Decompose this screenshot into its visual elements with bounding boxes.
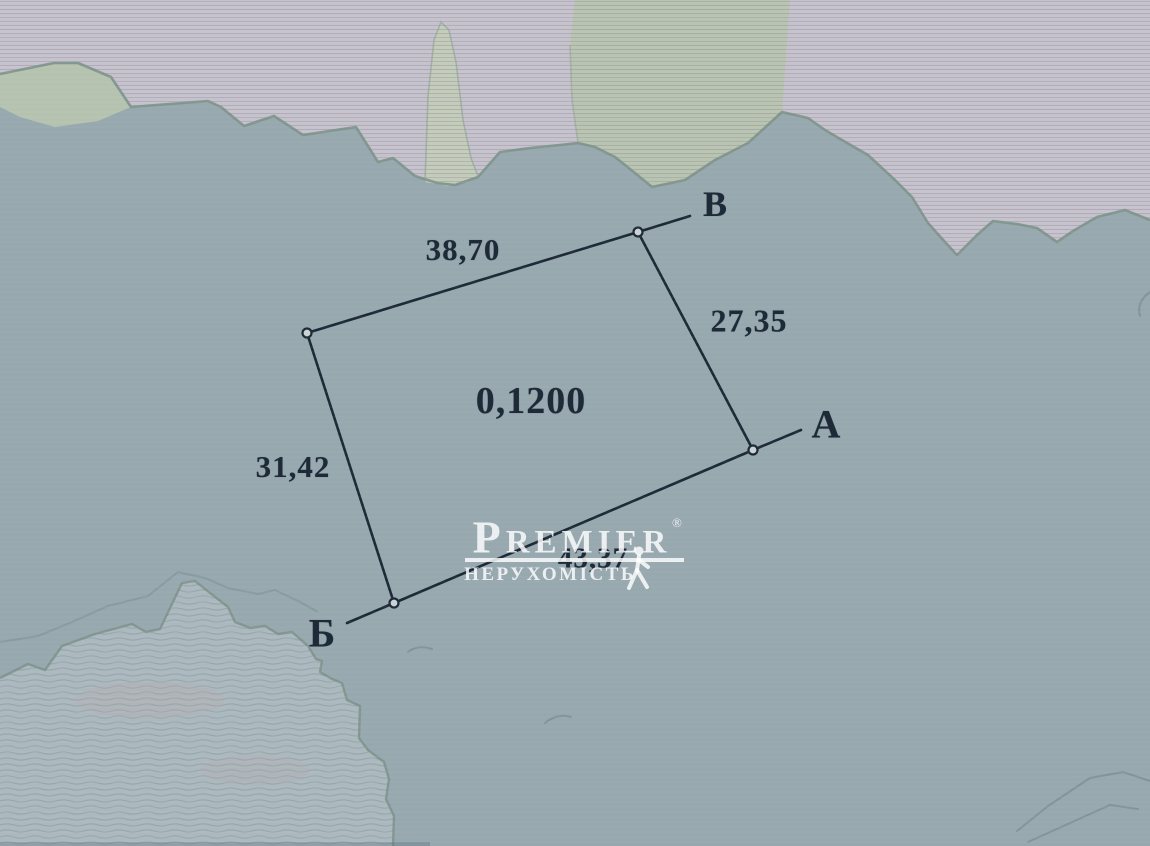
vertex-label-v: В — [703, 183, 727, 225]
vertex-label-b: Б — [309, 610, 335, 657]
side-length-right: 27,35 — [711, 303, 788, 340]
scanline-overlay — [0, 0, 1150, 846]
area-label: 0,1200 — [476, 379, 587, 423]
side-length-left: 31,42 — [256, 449, 331, 485]
scan-edge-shade — [0, 842, 430, 846]
map-background — [0, 0, 1150, 846]
watermark-subtitle: НЕРУХОМІСТЬ — [464, 564, 636, 586]
scanned-cadastral-plan: В А Б 38,70 27,35 31,42 43,37 0,1200 PRE… — [0, 0, 1150, 846]
registered-trademark-icon: ® — [672, 515, 682, 531]
vertex-label-a: А — [812, 401, 841, 448]
person-icon — [622, 542, 658, 594]
side-length-top: 38,70 — [426, 232, 501, 268]
